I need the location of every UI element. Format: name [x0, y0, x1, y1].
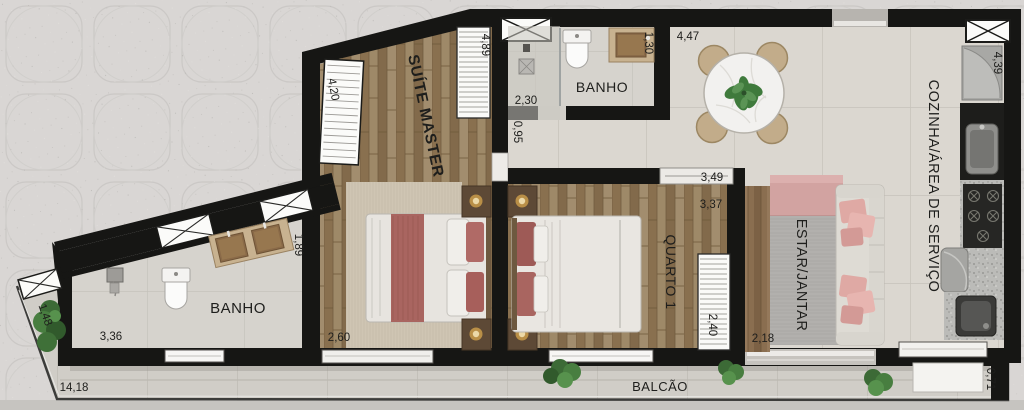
svg-text:4,39: 4,39: [991, 52, 1003, 74]
svg-text:14,18: 14,18: [60, 382, 89, 394]
svg-text:2,18: 2,18: [752, 333, 774, 345]
svg-text:COZINHA/ÁREA DE SERVIÇO: COZINHA/ÁREA DE SERVIÇO: [925, 80, 942, 293]
svg-text:BALCÃO: BALCÃO: [632, 379, 688, 394]
svg-text:3,36: 3,36: [100, 331, 122, 343]
svg-text:0,71: 0,71: [984, 368, 996, 390]
svg-text:3,37: 3,37: [700, 199, 722, 211]
svg-text:1,89: 1,89: [292, 234, 304, 256]
svg-text:QUARTO 1: QUARTO 1: [663, 234, 679, 309]
svg-text:BANHO: BANHO: [576, 79, 628, 95]
svg-text:2,30: 2,30: [515, 95, 537, 107]
svg-text:ESTAR/JANTAR: ESTAR/JANTAR: [793, 219, 809, 332]
svg-text:3,49: 3,49: [701, 172, 723, 184]
svg-text:1,30: 1,30: [642, 32, 654, 54]
svg-text:0,95: 0,95: [511, 121, 523, 143]
svg-text:BANHO: BANHO: [210, 300, 266, 317]
svg-text:4,47: 4,47: [677, 31, 699, 43]
svg-text:4,89: 4,89: [479, 34, 491, 56]
svg-text:2,60: 2,60: [328, 332, 350, 344]
svg-text:2,40: 2,40: [706, 314, 718, 336]
